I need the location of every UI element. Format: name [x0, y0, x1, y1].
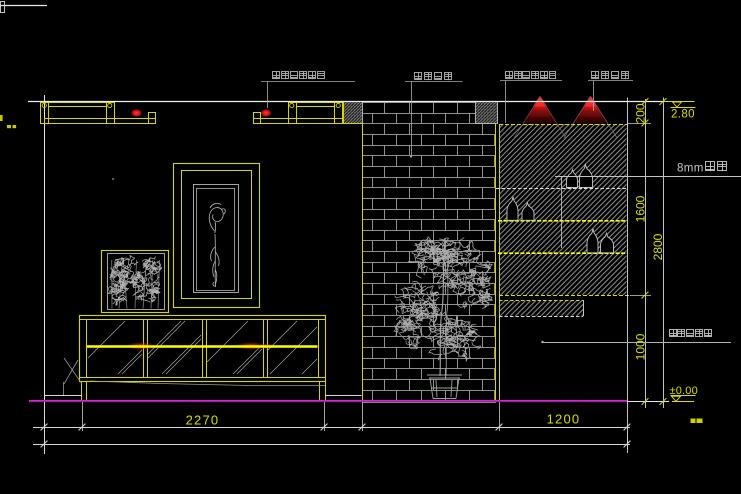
svg-text:2800: 2800 [651, 233, 665, 260]
svg-text:1200: 1200 [547, 412, 581, 427]
svg-text:2.80: 2.80 [671, 109, 695, 121]
svg-text:2270: 2270 [186, 413, 220, 428]
svg-text:1000: 1000 [634, 333, 648, 360]
svg-text:200: 200 [634, 103, 648, 123]
svg-text:1600: 1600 [634, 195, 648, 222]
svg-text:8mm: 8mm [677, 163, 704, 175]
